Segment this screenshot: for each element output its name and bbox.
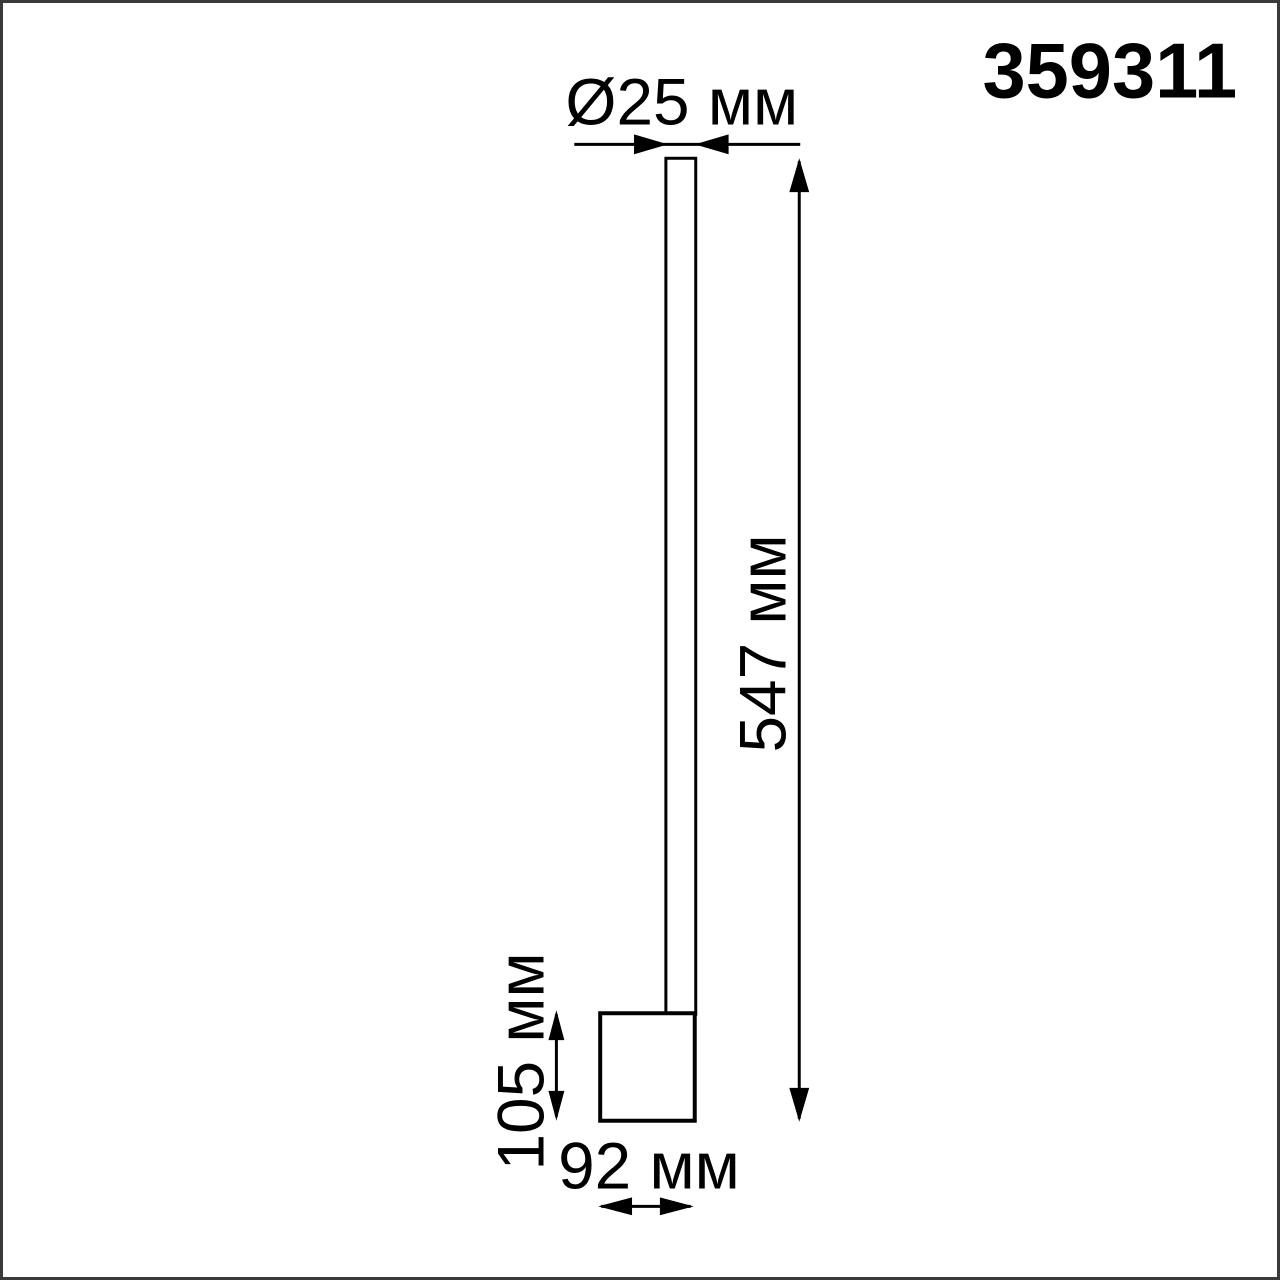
base-width-dimension-label: 92 мм — [558, 1129, 740, 1202]
base-height-dimension-label: 105 мм — [484, 952, 557, 1170]
part-number-label: 359311 — [982, 29, 1237, 115]
lamp-tube — [666, 158, 696, 1014]
height-arrow-up-icon — [789, 158, 809, 192]
height-dimension-label: 547 мм — [726, 534, 799, 752]
lamp-base — [600, 1013, 695, 1120]
height-arrow-down-icon — [789, 1088, 809, 1122]
diameter-dimension-label: Ø25 мм — [565, 65, 798, 138]
diagram-canvas: 359311 Ø25 мм 547 мм 105 мм 92 мм — [0, 0, 1280, 1280]
dimension-diagram: 359311 Ø25 мм 547 мм 105 мм 92 мм — [3, 3, 1277, 1277]
